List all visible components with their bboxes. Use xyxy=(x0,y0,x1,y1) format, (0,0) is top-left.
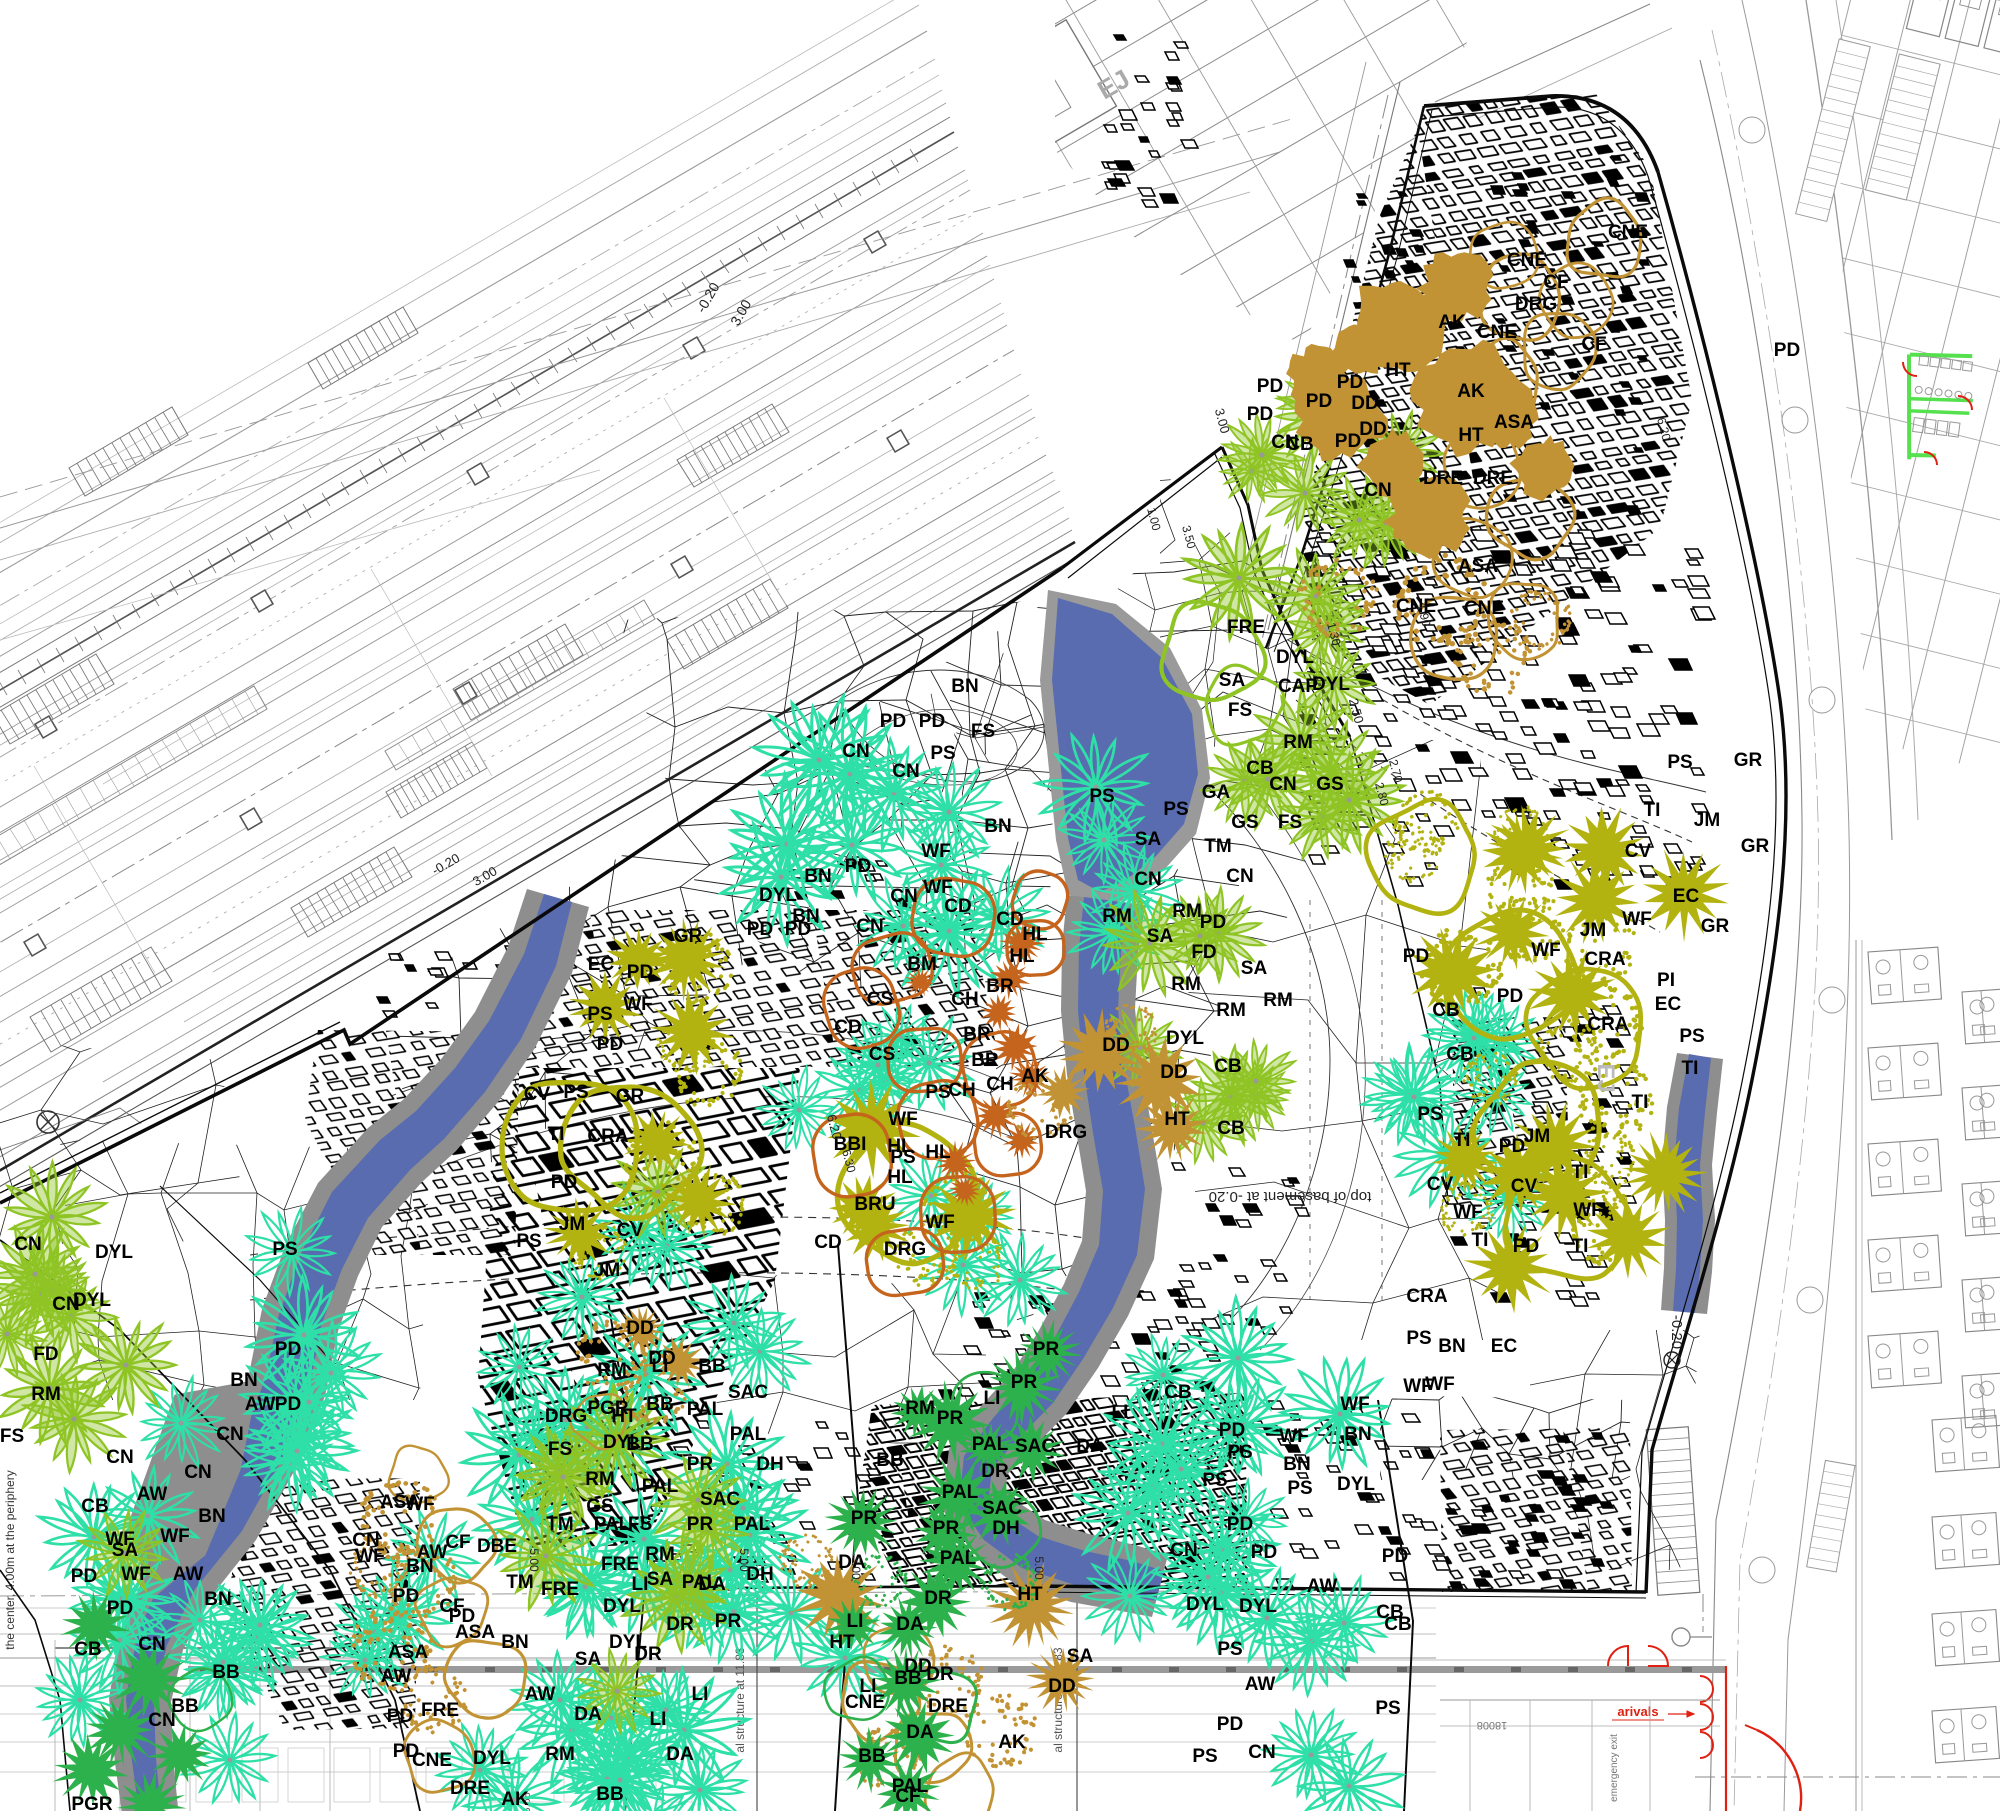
svg-text:CRA: CRA xyxy=(587,1126,628,1147)
svg-text:the center, 4.00m at the per: the center, 4.00m at the periphery xyxy=(3,1470,17,1649)
svg-text:PAL: PAL xyxy=(594,1514,631,1535)
svg-text:FS: FS xyxy=(628,1514,652,1535)
svg-text:BN: BN xyxy=(501,1632,528,1653)
svg-text:CN: CN xyxy=(1134,869,1161,890)
svg-text:CS: CS xyxy=(869,1044,895,1065)
svg-text:CB: CB xyxy=(1217,1118,1244,1139)
svg-text:RM: RM xyxy=(31,1384,61,1405)
svg-text:CH: CH xyxy=(951,989,978,1010)
svg-text:PD: PD xyxy=(1257,376,1283,397)
svg-text:SAC: SAC xyxy=(982,1498,1022,1519)
svg-text:RM: RM xyxy=(1283,732,1313,753)
svg-text:LI: LI xyxy=(1112,1402,1129,1423)
svg-text:EC: EC xyxy=(1491,1336,1518,1357)
svg-text:CN: CN xyxy=(1226,866,1253,887)
svg-text:DRE: DRE xyxy=(928,1696,968,1717)
svg-text:WF: WF xyxy=(923,877,953,898)
svg-text:TI: TI xyxy=(1572,1236,1589,1257)
svg-text:BB: BB xyxy=(876,1450,903,1471)
svg-text:PD: PD xyxy=(1306,391,1332,412)
svg-text:FRE: FRE xyxy=(601,1554,639,1575)
svg-text:DD: DD xyxy=(1102,1035,1129,1056)
svg-text:TI: TI xyxy=(1682,1058,1699,1079)
svg-text:HL: HL xyxy=(1009,946,1035,967)
svg-text:CH: CH xyxy=(948,1080,975,1101)
svg-text:BN: BN xyxy=(804,866,831,887)
svg-text:ASA: ASA xyxy=(380,1492,420,1513)
svg-text:PAL: PAL xyxy=(734,1514,771,1535)
svg-text:PS: PS xyxy=(1667,752,1692,773)
svg-text:RM: RM xyxy=(1216,1000,1246,1021)
svg-text:AK: AK xyxy=(1438,312,1466,333)
svg-text:AW: AW xyxy=(381,1666,412,1687)
svg-text:18008: 18008 xyxy=(1477,1719,1508,1731)
svg-text:LI: LI xyxy=(692,1684,709,1705)
svg-text:BN: BN xyxy=(1344,1424,1371,1445)
svg-text:DRE: DRE xyxy=(1473,468,1513,489)
svg-text:DD: DD xyxy=(1359,419,1386,440)
svg-text:CN: CN xyxy=(1248,1742,1275,1763)
svg-text:FRE: FRE xyxy=(541,1579,579,1600)
svg-text:RM: RM xyxy=(545,1744,575,1765)
svg-text:WF: WF xyxy=(1425,1374,1455,1395)
svg-text:BRU: BRU xyxy=(854,1194,895,1215)
svg-text:AW: AW xyxy=(1245,1674,1276,1695)
svg-text:CN: CN xyxy=(1170,1540,1197,1561)
svg-text:emergency exit: emergency exit xyxy=(1609,1734,1620,1802)
svg-text:PR: PR xyxy=(687,1514,714,1535)
svg-text:DD: DD xyxy=(1160,1062,1187,1083)
svg-text:PD: PD xyxy=(393,1586,419,1607)
svg-text:CNE: CNE xyxy=(1608,222,1648,243)
svg-text:AK: AK xyxy=(998,1732,1026,1753)
svg-text:DYL: DYL xyxy=(759,885,797,906)
svg-text:CB: CB xyxy=(1214,1056,1241,1077)
svg-text:GR: GR xyxy=(674,926,703,947)
svg-text:DD: DD xyxy=(648,1348,675,1369)
svg-text:PD: PD xyxy=(1217,1714,1243,1735)
svg-text:HT: HT xyxy=(1017,1584,1043,1605)
svg-text:PS: PS xyxy=(1089,786,1114,807)
svg-text:CV: CV xyxy=(617,1220,644,1241)
svg-text:PS: PS xyxy=(1192,1746,1217,1767)
svg-text:CN: CN xyxy=(106,1447,133,1468)
svg-text:DRG: DRG xyxy=(545,1406,587,1427)
svg-text:PAL: PAL xyxy=(730,1424,767,1445)
svg-text:ASA: ASA xyxy=(1458,556,1498,577)
svg-text:PD: PD xyxy=(71,1566,97,1587)
svg-text:DD: DD xyxy=(904,1656,931,1677)
svg-text:CB: CB xyxy=(1164,1382,1191,1403)
svg-text:DR: DR xyxy=(981,1461,1009,1482)
svg-text:PI: PI xyxy=(1657,970,1675,991)
svg-text:WF: WF xyxy=(1573,1200,1603,1221)
svg-text:PD: PD xyxy=(551,1172,577,1193)
svg-text:DYL: DYL xyxy=(603,1432,641,1453)
svg-text:WF: WF xyxy=(121,1564,151,1585)
svg-text:FS: FS xyxy=(0,1426,24,1447)
svg-text:HT: HT xyxy=(1458,425,1484,446)
svg-text:JM: JM xyxy=(559,1214,585,1235)
svg-text:DH: DH xyxy=(992,1518,1019,1539)
svg-text:JM: JM xyxy=(1694,810,1720,831)
svg-text:EC: EC xyxy=(1673,886,1700,907)
svg-text:GR: GR xyxy=(1701,916,1730,937)
svg-text:PD: PD xyxy=(1200,912,1226,933)
svg-text:CB: CB xyxy=(74,1639,101,1660)
svg-text:AK: AK xyxy=(1021,1066,1049,1087)
svg-text:BR: BR xyxy=(986,976,1014,997)
svg-text:LI: LI xyxy=(650,1709,667,1730)
svg-text:SA: SA xyxy=(1147,926,1174,947)
svg-text:CNE: CNE xyxy=(1507,250,1547,271)
svg-text:CNE: CNE xyxy=(845,1692,885,1713)
svg-text:DYL: DYL xyxy=(1239,1596,1277,1617)
svg-text:PS: PS xyxy=(1406,1328,1431,1349)
svg-text:5.00: 5.00 xyxy=(527,1548,541,1572)
svg-text:CS: CS xyxy=(867,989,893,1010)
svg-text:BN: BN xyxy=(1283,1454,1310,1475)
svg-text:WF: WF xyxy=(1453,1202,1483,1223)
svg-text:TM: TM xyxy=(1204,836,1231,857)
svg-text:BB: BB xyxy=(646,1394,673,1415)
svg-text:BB: BB xyxy=(596,1784,623,1805)
svg-text:RM: RM xyxy=(1172,901,1202,922)
svg-text:RM: RM xyxy=(905,1398,935,1419)
svg-text:WF: WF xyxy=(355,1546,385,1567)
svg-text:BM: BM xyxy=(907,954,937,975)
svg-text:PD: PD xyxy=(919,711,945,732)
svg-text:DD: DD xyxy=(1048,1676,1075,1697)
svg-text:CN: CN xyxy=(1269,774,1296,795)
svg-text:BR: BR xyxy=(971,1050,999,1071)
svg-text:PAL: PAL xyxy=(682,1572,719,1593)
svg-text:SA: SA xyxy=(575,1649,602,1670)
svg-text:DYL: DYL xyxy=(473,1748,511,1769)
svg-text:AW: AW xyxy=(173,1564,204,1585)
svg-text:PS: PS xyxy=(1679,1026,1704,1047)
svg-text:CF: CF xyxy=(439,1596,464,1617)
svg-text:PD: PD xyxy=(1219,1420,1245,1441)
svg-text:CN: CN xyxy=(1271,432,1298,453)
svg-text:-0.20: -0.20 xyxy=(1668,1315,1685,1349)
svg-text:PD: PD xyxy=(1247,404,1273,425)
svg-text:BN: BN xyxy=(204,1589,231,1610)
svg-text:EC: EC xyxy=(1655,994,1682,1015)
svg-text:5.00: 5.00 xyxy=(849,1556,863,1580)
svg-text:WF: WF xyxy=(925,1212,955,1233)
svg-text:CN: CN xyxy=(138,1634,165,1655)
svg-text:PD: PD xyxy=(1774,340,1800,361)
svg-text:FD: FD xyxy=(33,1344,58,1365)
svg-text:CN: CN xyxy=(842,741,869,762)
svg-text:FS: FS xyxy=(1278,812,1302,833)
svg-text:PAL: PAL xyxy=(687,1399,724,1420)
svg-text:PR: PR xyxy=(687,1454,714,1475)
svg-text:BN: BN xyxy=(984,816,1011,837)
svg-text:LI: LI xyxy=(984,1388,1001,1409)
svg-text:CV: CV xyxy=(1625,841,1652,862)
svg-text:DA: DA xyxy=(666,1744,694,1765)
svg-text:AW: AW xyxy=(245,1394,276,1415)
svg-text:CB: CB xyxy=(1432,1000,1459,1021)
svg-text:JM: JM xyxy=(1524,1126,1550,1147)
svg-text:FS: FS xyxy=(1228,700,1252,721)
svg-text:CB: CB xyxy=(1446,1044,1473,1065)
svg-text:GR: GR xyxy=(616,1086,645,1107)
svg-text:RM: RM xyxy=(1263,990,1293,1011)
svg-text:CN: CN xyxy=(14,1234,41,1255)
svg-text:PAL: PAL xyxy=(942,1482,979,1503)
svg-text:ASA: ASA xyxy=(388,1642,428,1663)
svg-text:CB: CB xyxy=(1384,1614,1411,1635)
svg-text:top of basement at -0.20: top of basement at -0.20 xyxy=(1209,1188,1372,1205)
svg-text:CRA: CRA xyxy=(1584,949,1625,970)
svg-text:PD: PD xyxy=(1337,372,1363,393)
svg-text:DYL: DYL xyxy=(1166,1028,1204,1049)
svg-text:DA: DA xyxy=(896,1614,924,1635)
svg-text:AW: AW xyxy=(1307,1576,1338,1597)
svg-text:PD: PD xyxy=(107,1598,133,1619)
svg-text:PD: PD xyxy=(1403,946,1429,967)
svg-text:DRG: DRG xyxy=(1515,294,1557,315)
svg-text:RM: RM xyxy=(1171,974,1201,995)
svg-text:PD: PD xyxy=(597,1034,623,1055)
svg-text:5.00: 5.00 xyxy=(1032,1556,1046,1580)
svg-text:CN: CN xyxy=(892,761,919,782)
svg-text:CN: CN xyxy=(216,1424,243,1445)
svg-text:DA: DA xyxy=(1076,1436,1104,1457)
svg-text:FS: FS xyxy=(548,1439,572,1460)
svg-text:CD: CD xyxy=(814,1232,841,1253)
svg-text:PD: PD xyxy=(747,919,773,940)
svg-text:SAC: SAC xyxy=(728,1382,768,1403)
svg-text:CN: CN xyxy=(148,1710,175,1731)
svg-text:PS: PS xyxy=(1417,1104,1442,1125)
svg-text:WF: WF xyxy=(160,1526,190,1547)
svg-text:AW: AW xyxy=(525,1684,556,1705)
svg-text:WF: WF xyxy=(1340,1394,1370,1415)
svg-text:PR: PR xyxy=(933,1518,960,1539)
svg-text:RM: RM xyxy=(1102,906,1132,927)
svg-text:CV: CV xyxy=(1511,1176,1538,1197)
svg-text:TI: TI xyxy=(1454,1130,1471,1151)
svg-text:ASA: ASA xyxy=(455,1622,495,1643)
svg-text:BN: BN xyxy=(406,1556,433,1577)
svg-text:HT: HT xyxy=(611,1406,637,1427)
svg-text:CN: CN xyxy=(890,886,917,907)
svg-text:PD: PD xyxy=(1497,986,1523,1007)
svg-text:BB: BB xyxy=(698,1356,725,1377)
svg-text:PD: PD xyxy=(880,711,906,732)
svg-text:TM: TM xyxy=(506,1572,533,1593)
svg-text:HT: HT xyxy=(1385,360,1411,381)
svg-text:PD: PD xyxy=(1499,1136,1525,1157)
svg-text:CF: CF xyxy=(1543,272,1568,293)
svg-text:ASA: ASA xyxy=(1494,412,1534,433)
svg-text:DRE: DRE xyxy=(450,1778,490,1799)
svg-text:CNE: CNE xyxy=(412,1750,452,1771)
svg-text:WF: WF xyxy=(1622,909,1652,930)
svg-text:EC: EC xyxy=(588,954,615,975)
svg-text:PS: PS xyxy=(1163,799,1188,820)
svg-text:AW: AW xyxy=(137,1484,168,1505)
svg-text:PD: PD xyxy=(845,856,871,877)
svg-text:DA: DA xyxy=(574,1704,602,1725)
svg-text:WF: WF xyxy=(105,1529,135,1550)
svg-text:WF: WF xyxy=(623,994,653,1015)
svg-text:WF: WF xyxy=(1279,1426,1309,1447)
svg-text:TI: TI xyxy=(1644,800,1661,821)
svg-text:CRA: CRA xyxy=(1587,1014,1628,1035)
svg-text:GR: GR xyxy=(1734,750,1763,771)
svg-text:BN: BN xyxy=(230,1370,257,1391)
svg-text:PD: PD xyxy=(1227,1514,1253,1535)
svg-text:PR: PR xyxy=(1033,1339,1060,1360)
svg-text:BN: BN xyxy=(198,1506,225,1527)
svg-text:WF: WF xyxy=(1531,940,1561,961)
svg-text:RM: RM xyxy=(585,1469,615,1490)
svg-text:CN: CN xyxy=(1364,480,1391,501)
svg-text:PS: PS xyxy=(1287,1478,1312,1499)
svg-text:PS: PS xyxy=(925,1082,950,1103)
svg-text:GS: GS xyxy=(586,1496,613,1517)
svg-text:PD: PD xyxy=(1513,1236,1539,1257)
svg-text:BB: BB xyxy=(858,1746,885,1767)
svg-text:DA: DA xyxy=(906,1722,934,1743)
svg-text:HT: HT xyxy=(829,1632,855,1653)
svg-text:DD: DD xyxy=(626,1318,653,1339)
svg-text:CN: CN xyxy=(856,916,883,937)
svg-text:CV: CV xyxy=(524,1084,551,1105)
svg-text:SA: SA xyxy=(1135,829,1162,850)
svg-text:PS: PS xyxy=(272,1239,297,1260)
svg-text:RM: RM xyxy=(597,1360,627,1381)
svg-text:TI: TI xyxy=(1572,1162,1589,1183)
svg-text:TI: TI xyxy=(1632,1092,1649,1113)
svg-text:BR: BR xyxy=(963,1024,991,1045)
svg-text:PS: PS xyxy=(1375,1698,1400,1719)
svg-text:SA: SA xyxy=(647,1569,674,1590)
svg-text:BN: BN xyxy=(951,676,978,697)
svg-text:FRE: FRE xyxy=(421,1700,459,1721)
svg-text:DBE: DBE xyxy=(477,1536,517,1557)
svg-text:PD: PD xyxy=(1382,1546,1408,1567)
svg-text:SA: SA xyxy=(1219,670,1246,691)
svg-text:DYL: DYL xyxy=(609,1632,647,1653)
svg-text:CD: CD xyxy=(944,896,971,917)
svg-text:CNE: CNE xyxy=(1477,322,1517,343)
svg-text:DRG: DRG xyxy=(1045,1122,1087,1143)
svg-text:BN: BN xyxy=(1438,1336,1465,1357)
svg-text:PS: PS xyxy=(516,1231,541,1252)
svg-text:EJ: EJ xyxy=(1592,1063,1619,1092)
svg-text:CN: CN xyxy=(184,1462,211,1483)
svg-text:PS: PS xyxy=(1217,1639,1242,1660)
svg-text:HL: HL xyxy=(1022,924,1048,945)
svg-text:WF: WF xyxy=(921,841,951,862)
svg-text:PAL: PAL xyxy=(972,1434,1009,1455)
svg-text:FRE: FRE xyxy=(1227,617,1265,638)
svg-text:TI: TI xyxy=(1472,1230,1489,1251)
svg-text:GR: GR xyxy=(1741,836,1770,857)
svg-text:FD: FD xyxy=(1191,942,1216,963)
svg-text:HL: HL xyxy=(887,1167,913,1188)
svg-text:SAC: SAC xyxy=(1015,1436,1055,1457)
svg-text:DR: DR xyxy=(924,1588,952,1609)
svg-text:PD: PD xyxy=(627,962,653,983)
svg-text:CF: CF xyxy=(1581,334,1606,355)
svg-text:DYL: DYL xyxy=(1337,1474,1375,1495)
svg-text:DYL: DYL xyxy=(95,1242,133,1263)
svg-text:PR: PR xyxy=(851,1508,878,1529)
svg-text:PS: PS xyxy=(930,743,955,764)
svg-text:LI: LI xyxy=(847,1611,864,1632)
svg-text:AK: AK xyxy=(501,1789,529,1810)
svg-text:PAL: PAL xyxy=(642,1476,679,1497)
svg-text:CF: CF xyxy=(445,1532,470,1553)
svg-text:DH: DH xyxy=(756,1454,783,1475)
svg-text:DYL: DYL xyxy=(1186,1594,1224,1615)
svg-text:SAC: SAC xyxy=(700,1489,740,1510)
svg-text:PS: PS xyxy=(563,1082,588,1103)
svg-text:DRG: DRG xyxy=(884,1239,926,1260)
svg-text:CN: CN xyxy=(52,1294,79,1315)
svg-text:DR: DR xyxy=(666,1614,694,1635)
svg-text:GA: GA xyxy=(1202,782,1231,803)
svg-text:PGR: PGR xyxy=(71,1794,112,1811)
svg-text:WF: WF xyxy=(888,1109,918,1130)
svg-text:CB: CB xyxy=(81,1496,108,1517)
svg-text:CRA: CRA xyxy=(1406,1286,1447,1307)
svg-text:CNE: CNE xyxy=(1464,598,1504,619)
svg-text:PD: PD xyxy=(387,1706,413,1727)
svg-text:CF: CF xyxy=(895,1786,920,1807)
svg-text:HL: HL xyxy=(925,1142,951,1163)
svg-text:CH: CH xyxy=(986,1074,1013,1095)
svg-text:TI: TI xyxy=(548,1124,565,1145)
svg-text:5.00: 5.00 xyxy=(737,1548,751,1572)
svg-text:PD: PD xyxy=(275,1394,301,1415)
svg-text:al structure at 11.83: al structure at 11.83 xyxy=(733,1647,747,1752)
svg-text:CD: CD xyxy=(996,909,1023,930)
svg-text:DYL: DYL xyxy=(1312,674,1350,695)
svg-text:GS: GS xyxy=(1316,774,1343,795)
svg-text:PS: PS xyxy=(1227,1442,1252,1463)
svg-text:PAL: PAL xyxy=(940,1548,977,1569)
svg-text:PD: PD xyxy=(785,919,811,940)
svg-text:PD: PD xyxy=(275,1339,301,1360)
svg-text:BB: BB xyxy=(212,1662,239,1683)
svg-text:arivals: arivals xyxy=(1617,1704,1658,1719)
svg-text:CD: CD xyxy=(834,1017,861,1038)
svg-text:CV: CV xyxy=(1427,1174,1454,1195)
svg-text:PD: PD xyxy=(1251,1542,1277,1563)
svg-text:JM: JM xyxy=(1580,920,1606,941)
svg-text:PR: PR xyxy=(1011,1372,1038,1393)
svg-text:DD: DD xyxy=(1351,393,1378,414)
svg-text:DYL: DYL xyxy=(603,1596,641,1617)
svg-text:PS: PS xyxy=(587,1004,612,1025)
svg-text:SA: SA xyxy=(1067,1646,1094,1667)
svg-text:PS: PS xyxy=(1202,1470,1227,1491)
svg-text:SA: SA xyxy=(1241,958,1268,979)
svg-text:GS: GS xyxy=(1231,812,1258,833)
svg-text:TM: TM xyxy=(546,1514,573,1535)
svg-text:DYL: DYL xyxy=(1276,647,1314,668)
svg-text:PD: PD xyxy=(1335,431,1361,452)
svg-text:JM: JM xyxy=(594,1260,620,1281)
